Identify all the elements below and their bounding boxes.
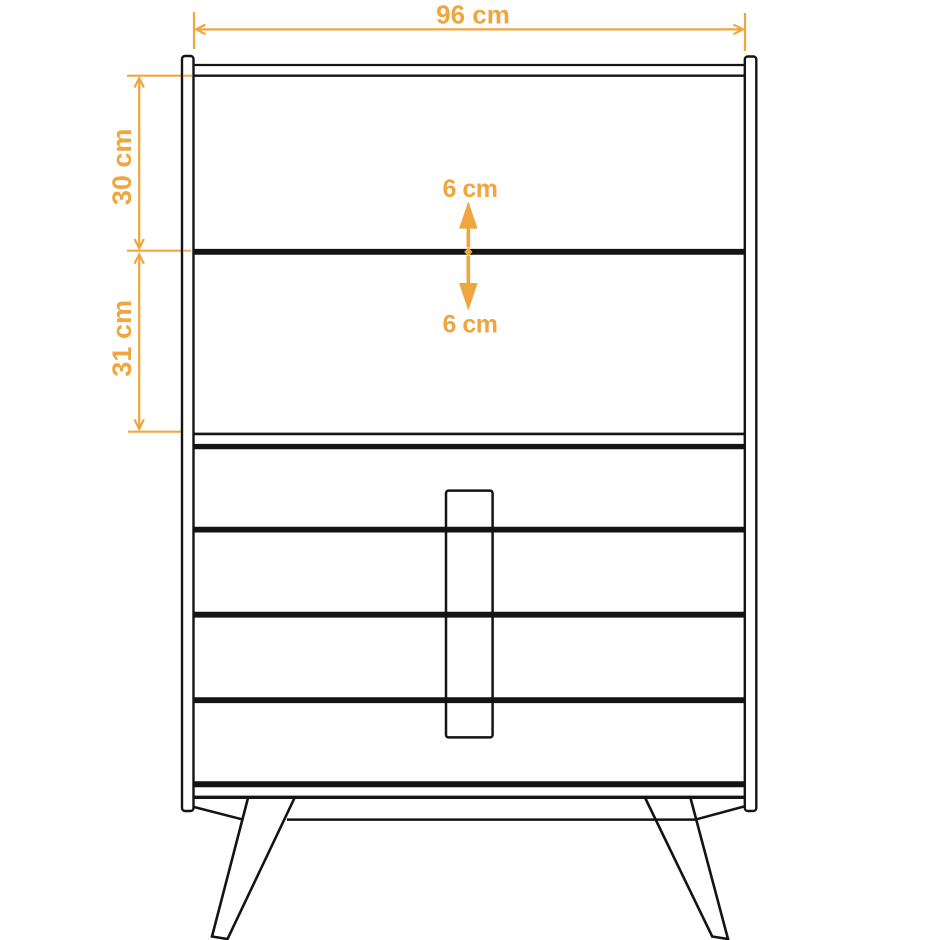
svg-text:30 cm: 30 cm bbox=[107, 129, 137, 206]
svg-text:31 cm: 31 cm bbox=[107, 300, 137, 377]
svg-text:6 cm: 6 cm bbox=[443, 310, 498, 338]
svg-text:6 cm: 6 cm bbox=[443, 175, 498, 203]
svg-text:96 cm: 96 cm bbox=[436, 0, 510, 30]
